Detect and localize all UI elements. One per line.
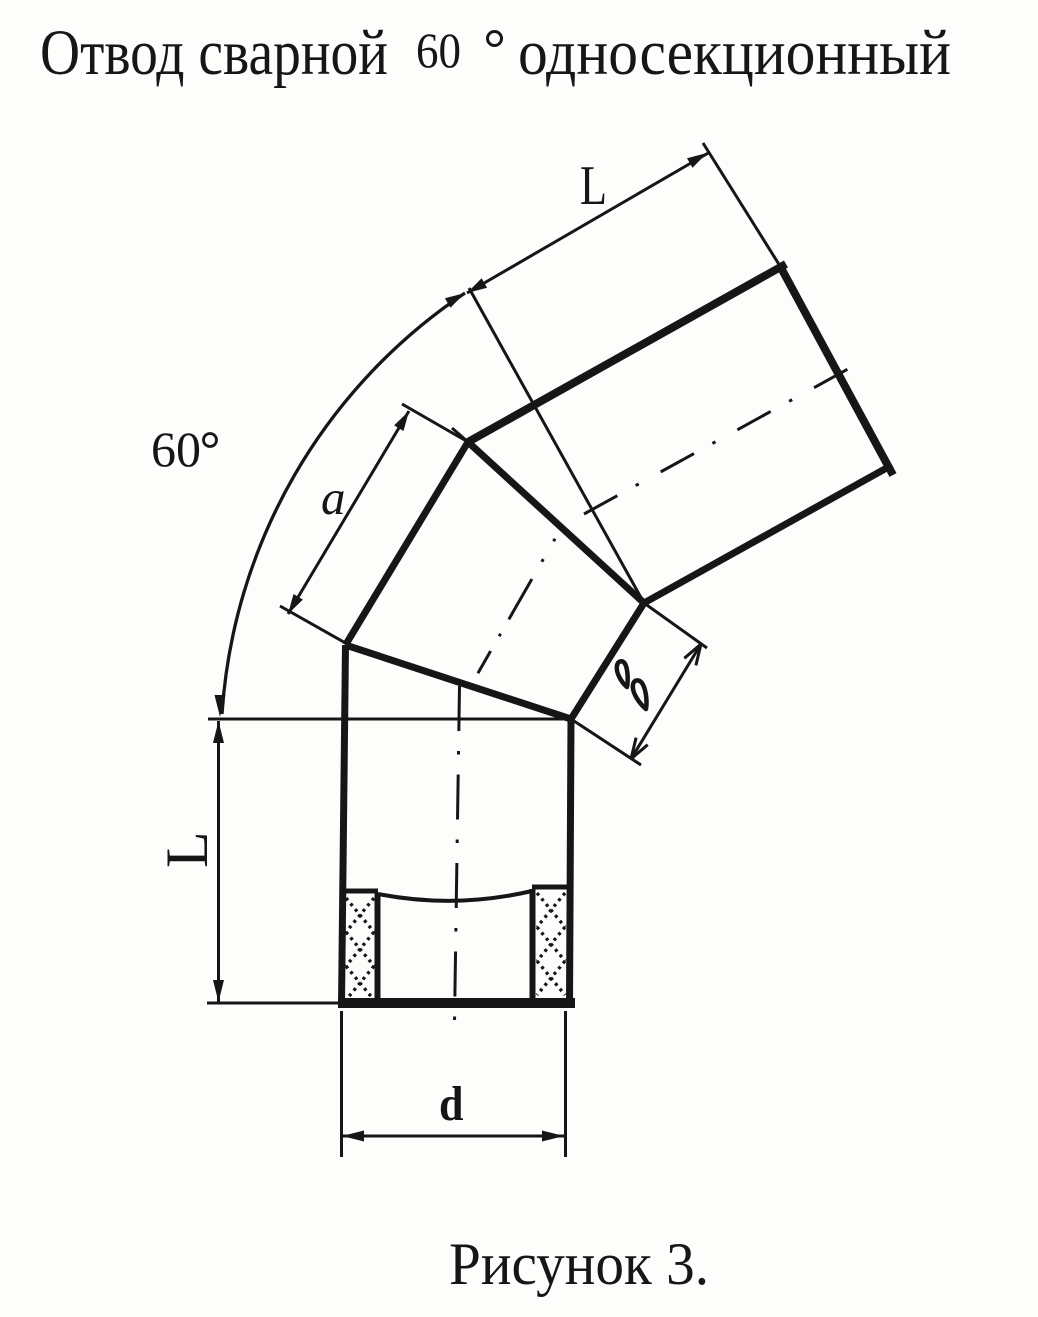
svg-text:60: 60: [151, 421, 201, 477]
svg-text:L: L: [154, 831, 220, 868]
svg-text:60: 60: [416, 22, 461, 78]
svg-text:Рисунок 3.: Рисунок 3.: [449, 1231, 709, 1297]
svg-text:односекционный: односекционный: [518, 17, 951, 89]
svg-text:L: L: [580, 155, 607, 217]
svg-text:d: d: [439, 1076, 464, 1131]
svg-text:Отвод сварной: Отвод сварной: [40, 17, 388, 89]
svg-text:a: a: [321, 470, 346, 525]
